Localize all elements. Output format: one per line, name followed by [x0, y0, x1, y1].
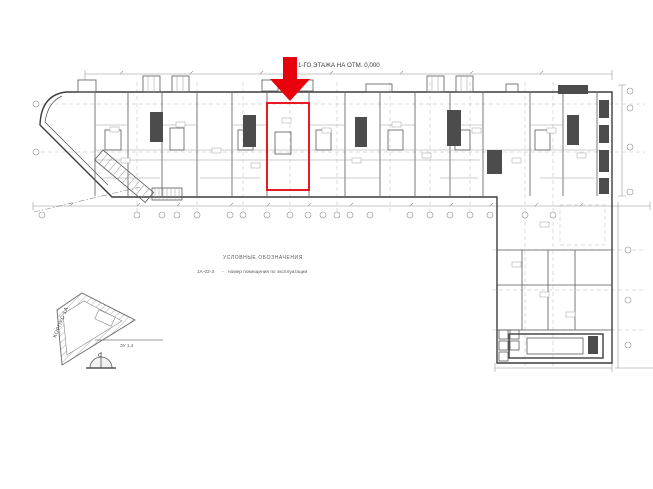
legend-heading: УСЛОВНЫЕ ОБОЗНАЧЕНИЯ	[223, 255, 303, 261]
interior-walls	[45, 93, 600, 196]
floor-plan-drawing: 1-ГО ЭТАЖА НА ОТМ. 0,000 УСЛОВНЫЕ ОБОЗНА…	[0, 0, 653, 489]
site-key-symbol: КОРПУС 1А ЗУ 1,4 С	[52, 293, 163, 368]
highlighted-unit-outline	[267, 103, 309, 190]
legend-item-description: номер помещения по эксплуатации	[228, 270, 307, 275]
stair-cores	[150, 100, 609, 194]
legend-item-separator: -	[222, 270, 224, 275]
floor-plan-canvas: 1-ГО ЭТАЖА НА ОТМ. 0,000 УСЛОВНЫЕ ОБОЗНА…	[0, 0, 653, 489]
wing-interior	[497, 205, 612, 361]
legend-item-code: 1А-02-3	[197, 269, 214, 275]
plot-label: ЗУ 1,4	[120, 343, 134, 348]
site-boundary-line	[34, 187, 140, 212]
legend: УСЛОВНЫЕ ОБОЗНАЧЕНИЯ 1А-02-3 - номер пом…	[197, 255, 307, 275]
entrance-ramp	[95, 150, 182, 202]
north-arrow: С	[86, 352, 116, 368]
plan-title: 1-ГО ЭТАЖА НА ОТМ. 0,000	[298, 62, 380, 69]
